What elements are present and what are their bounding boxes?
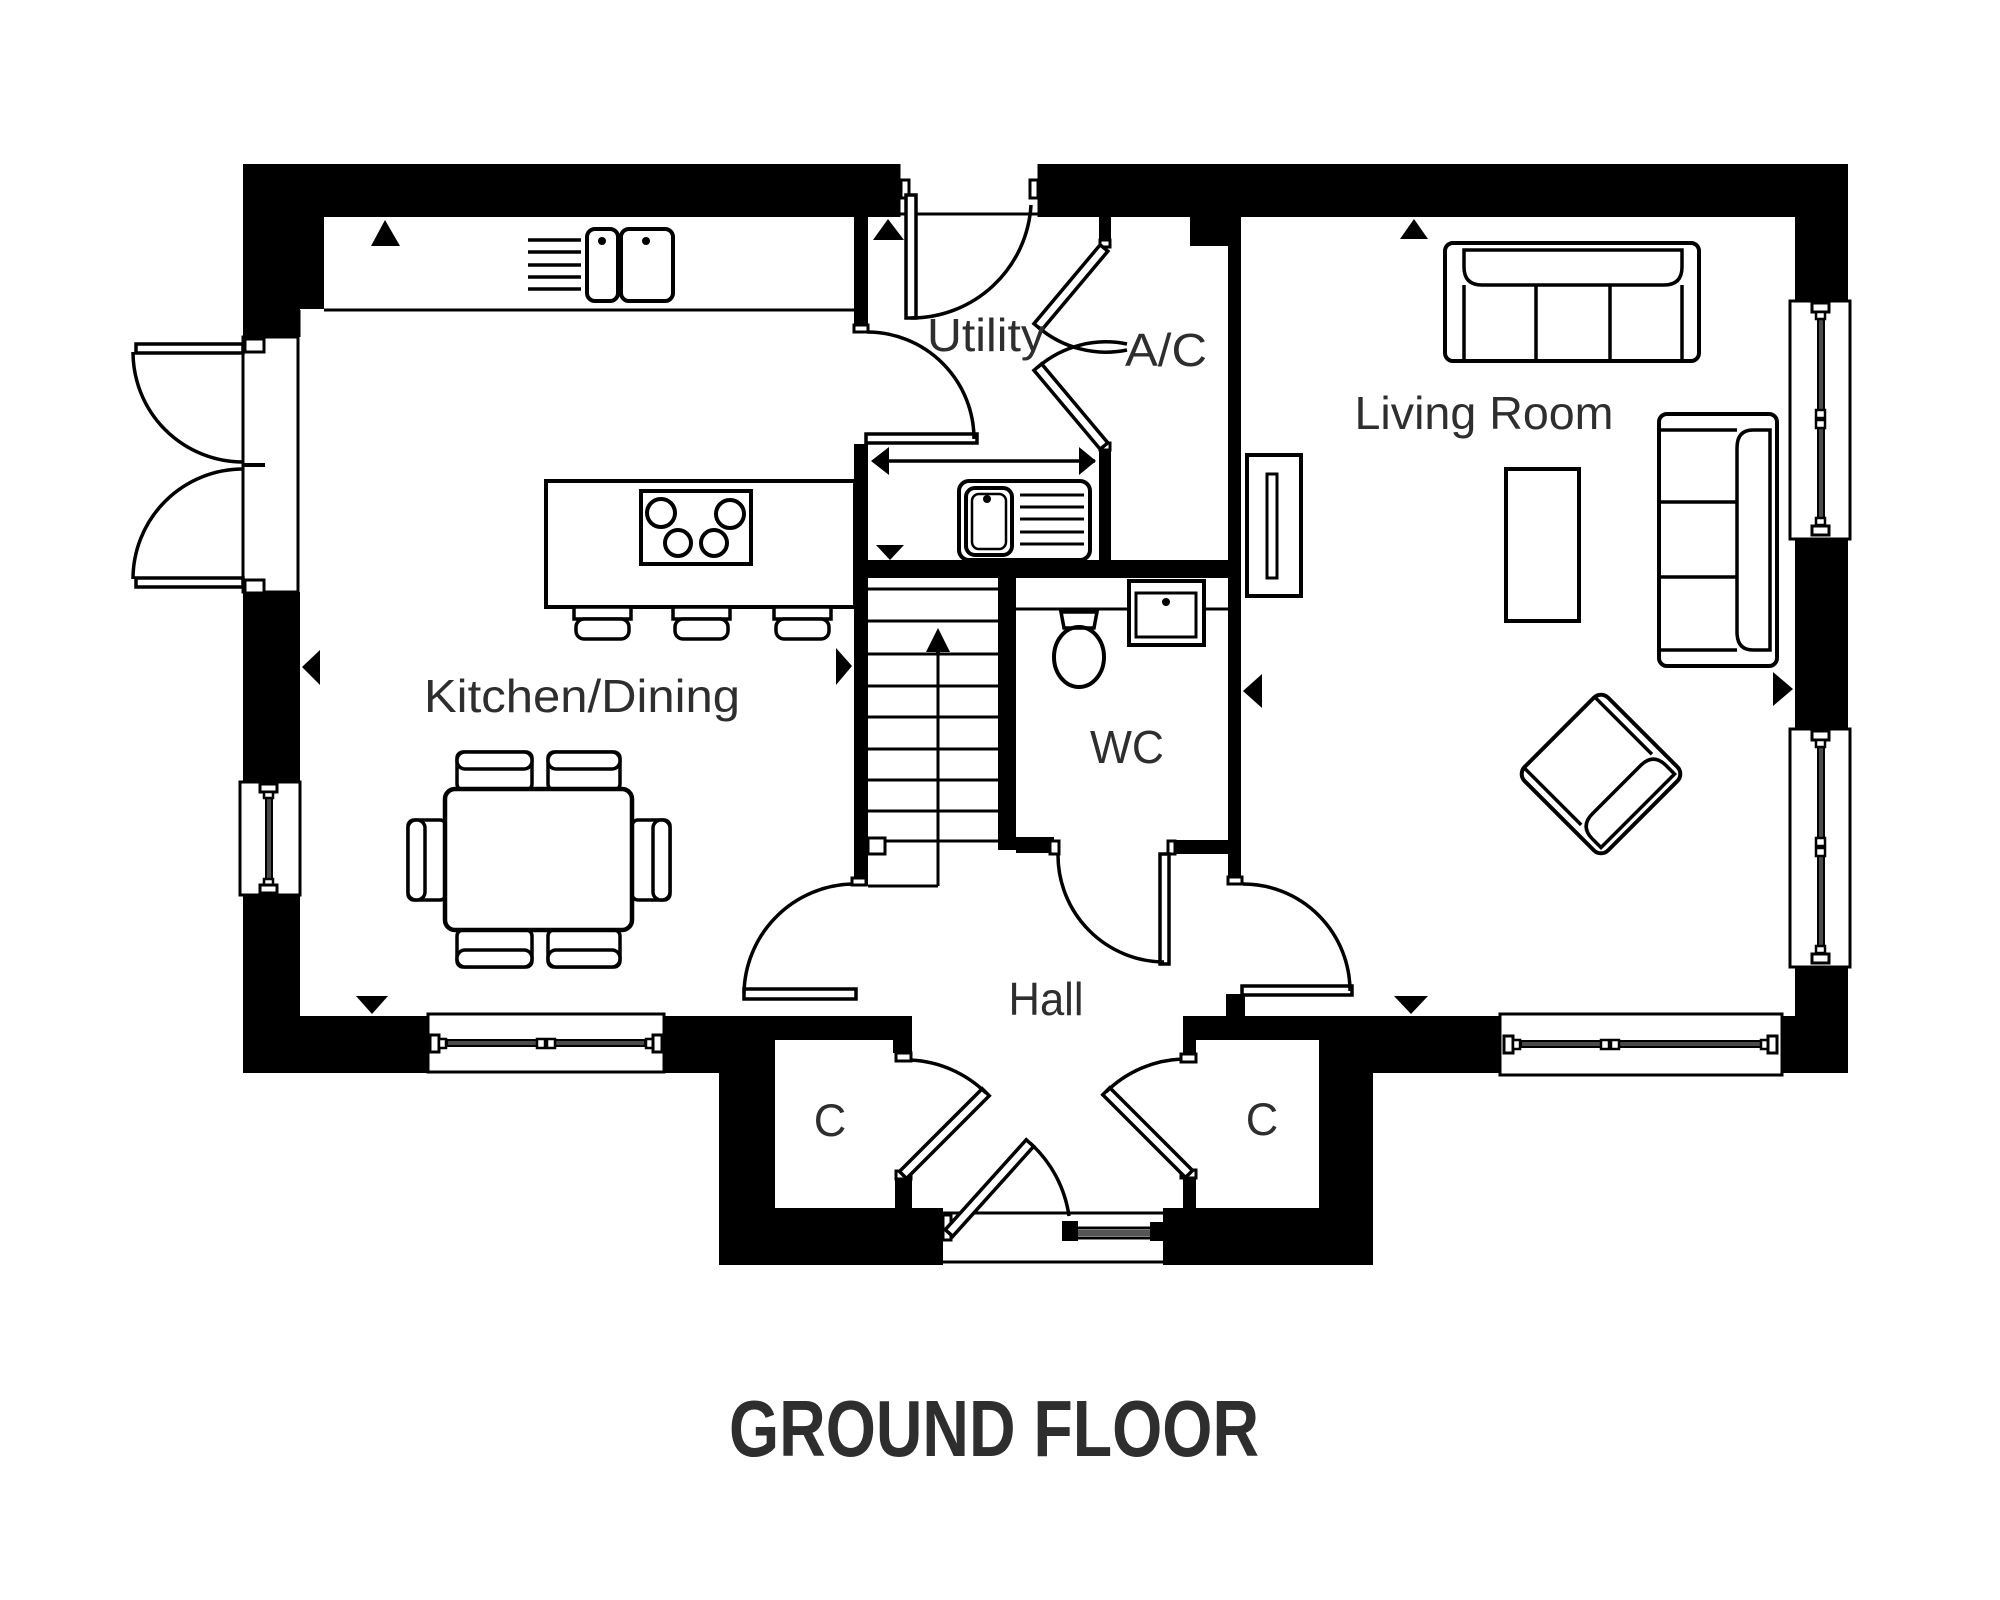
svg-text:C: C [1246,1094,1279,1145]
svg-text:Kitchen/Dining: Kitchen/Dining [424,670,740,722]
svg-text:Utility: Utility [927,309,1045,361]
svg-text:A/C: A/C [1125,324,1207,376]
svg-text:WC: WC [1090,721,1164,773]
svg-text:C: C [814,1095,847,1146]
svg-text:Hall: Hall [1009,973,1084,1025]
svg-text:Living Room: Living Room [1355,387,1614,439]
svg-text:GROUND FLOOR: GROUND FLOOR [729,1384,1259,1473]
